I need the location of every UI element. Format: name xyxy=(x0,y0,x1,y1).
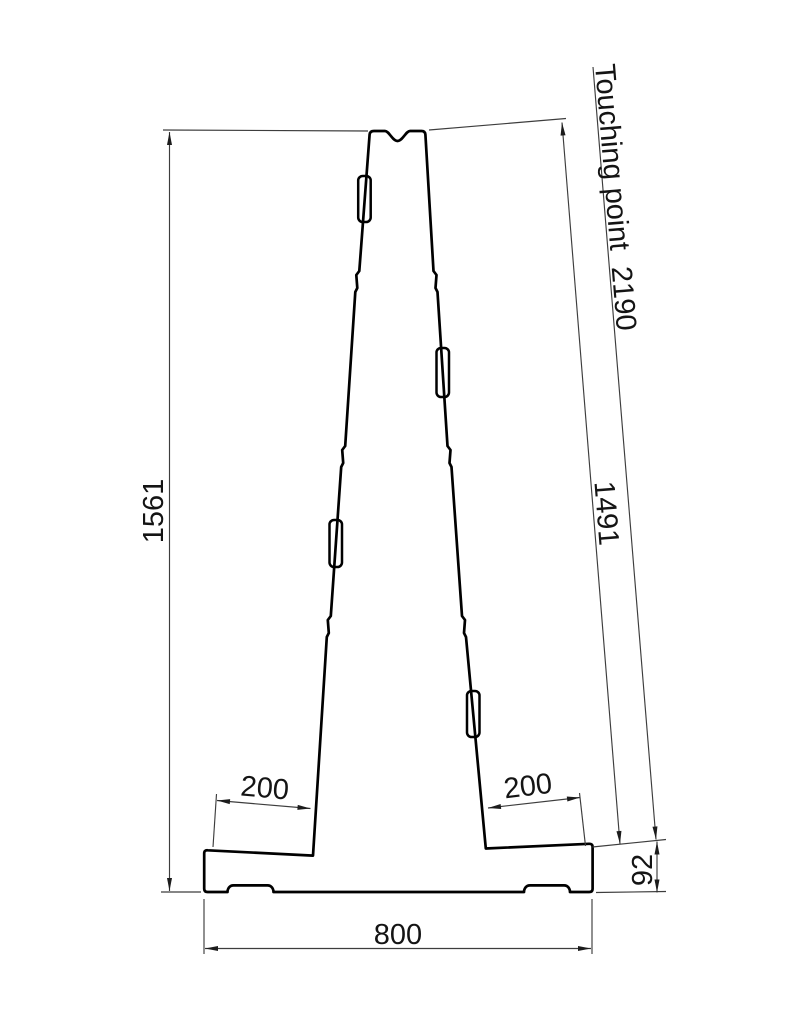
dim-ext-line xyxy=(593,840,667,848)
dim-ext-line xyxy=(213,794,217,847)
dim-ext-line xyxy=(429,119,566,131)
dim-left-200: 200 xyxy=(213,771,311,847)
dim-diagonal-1491-label: 1491 xyxy=(587,480,624,547)
dim-height-1561-label: 1561 xyxy=(138,479,170,544)
dim-base-height-92: 92 xyxy=(593,840,667,893)
arrowhead xyxy=(578,946,591,951)
dim-touching-point-2190-label: Touching point 2190 xyxy=(588,63,642,332)
dim-ext-line xyxy=(596,892,666,893)
drawing-svg: 1561 800 200 200 92 xyxy=(0,0,807,1024)
dim-right-200-label: 200 xyxy=(502,768,554,806)
arrowhead xyxy=(167,878,172,891)
dim-left-200-label: 200 xyxy=(239,771,290,807)
dim-width-800: 800 xyxy=(204,899,592,954)
dim-width-800-label: 800 xyxy=(374,919,422,951)
dim-touching-point-2190: Touching point 2190 xyxy=(588,63,658,840)
arrowhead xyxy=(655,842,660,855)
arrowhead xyxy=(205,946,218,951)
dim-ext-line xyxy=(163,130,368,131)
dim-diagonal-1491: 1491 xyxy=(429,119,625,845)
dim-right-200: 200 xyxy=(488,768,586,846)
dim-ext-line xyxy=(580,793,586,846)
arrowhead xyxy=(167,132,172,145)
technical-drawing: 1561 800 200 200 92 xyxy=(0,0,807,1024)
dim-base-height-92-label: 92 xyxy=(627,854,659,886)
